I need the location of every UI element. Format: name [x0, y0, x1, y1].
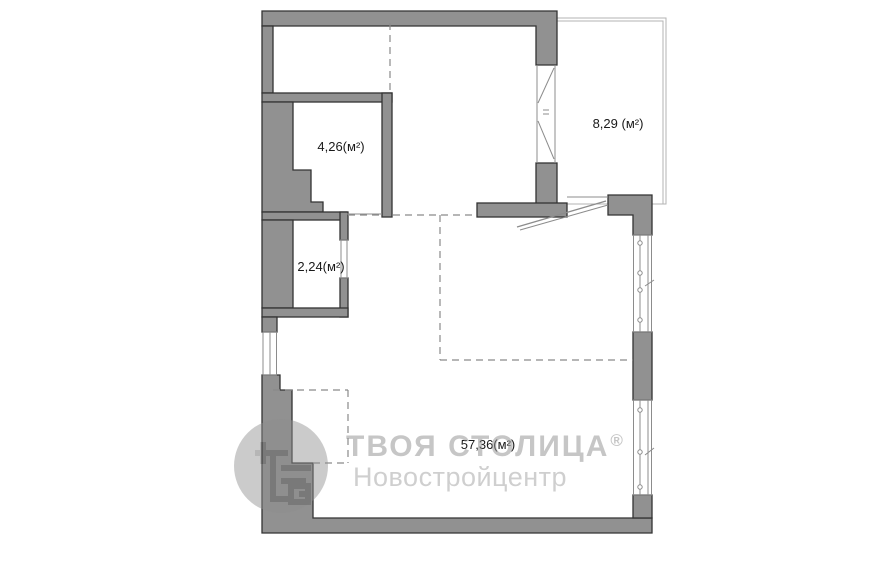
room-label-pantry: 4,26(м²): [317, 139, 364, 154]
room-label-living: 57,36(м²): [461, 437, 515, 452]
zone-dashed-lines: [273, 23, 633, 463]
floor-plan-page: 4,26(м²) 2,24(м²) 8,29 (м²) 57,36(м²): [0, 0, 893, 571]
balcony-outline: [557, 18, 666, 204]
room-labels: 4,26(м²) 2,24(м²) 8,29 (м²) 57,36(м²): [297, 116, 643, 452]
floor-plan-drawing: 4,26(м²) 2,24(м²) 8,29 (м²) 57,36(м²): [0, 0, 893, 571]
balcony-window-opening: [537, 65, 555, 163]
room-label-closet: 2,24(м²): [297, 259, 344, 274]
room-label-balcony: 8,29 (м²): [593, 116, 644, 131]
window-right-lower: [633, 400, 654, 495]
window-left: [263, 332, 277, 375]
window-right-upper: [633, 235, 654, 332]
